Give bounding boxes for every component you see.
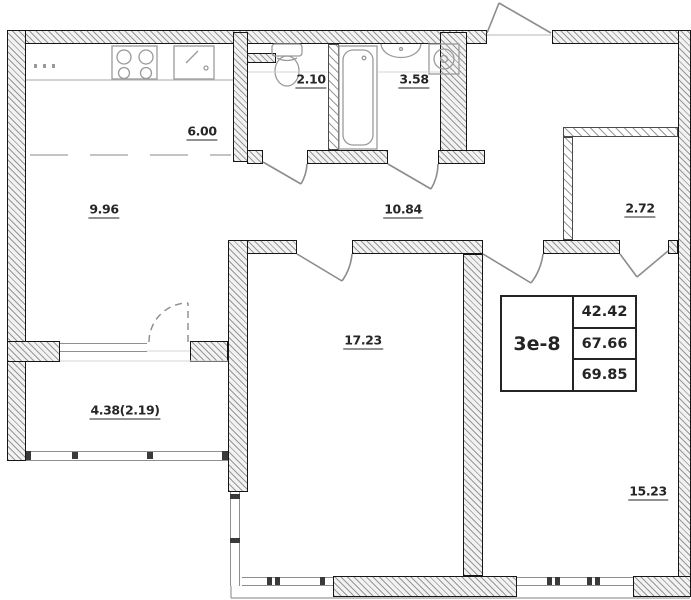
entrance-door [487,3,551,35]
room-area-label-kitchen: 6.00 [186,124,217,141]
washing-machine-icon [429,44,459,74]
room-area-label-living: 9.96 [88,202,119,219]
stove-icon [112,46,157,79]
terrace-outline [231,586,690,598]
room-area-label-wardrobe: 2.72 [624,201,655,218]
window-ticks [26,451,600,585]
room-area-label-balcony: 4.38(2.19) [89,403,160,420]
living-area-value: 42.42 [574,297,635,329]
counter-dots-icon [34,64,55,68]
bathtub-icon [339,46,377,149]
apartment-number: 3е-8 [502,297,574,390]
kitchen-sink-icon [174,46,214,79]
room-area-label-wc: 2.10 [295,72,326,89]
apartment-stamp: 3е-8 42.42 67.66 69.85 [500,295,637,392]
bath-sink-icon [381,44,421,58]
room-area-label-hallway: 10.84 [383,202,423,219]
apartment-areas: 42.42 67.66 69.85 [574,297,635,390]
area-value: 67.66 [574,329,635,361]
balcony-door-swing [149,303,188,342]
room-area-label-bedroom: 15.23 [628,484,668,501]
room-area-label-bathroom: 3.58 [398,72,429,89]
floor-plan: 6.00 2.10 3.58 9.96 10.84 2.72 17.23 4.3… [0,0,691,600]
door-swing [263,162,668,283]
room-area-label-room1: 17.23 [343,333,383,350]
total-area-value: 69.85 [574,360,635,390]
